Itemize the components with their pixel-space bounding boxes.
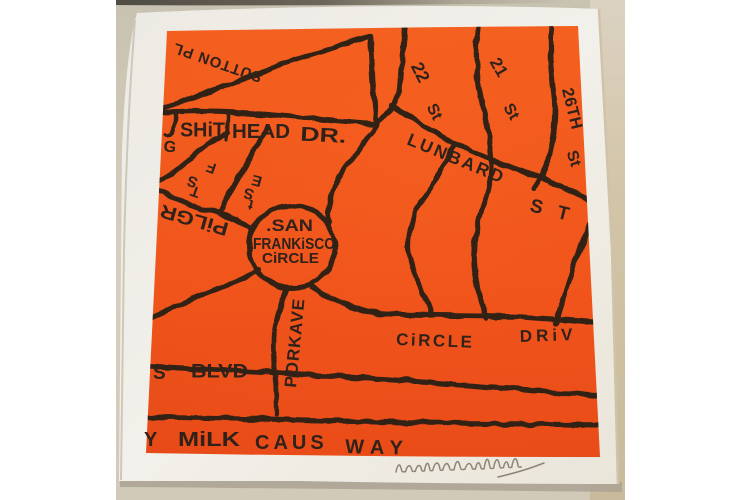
svg-text:Y: Y — [144, 429, 158, 451]
svg-text:G: G — [162, 138, 177, 157]
svg-text:DRiV: DRiV — [519, 325, 576, 346]
svg-text:MiLK: MiLK — [178, 429, 241, 451]
svg-text:WAY: WAY — [345, 436, 410, 460]
svg-text:CiRCLE: CiRCLE — [396, 330, 475, 352]
svg-text:.SAN: .SAN — [266, 216, 313, 235]
svg-text:CAUS: CAUS — [255, 432, 328, 454]
svg-text:HEAD: HEAD — [232, 121, 290, 143]
svg-text:DR.: DR. — [300, 124, 347, 148]
svg-text:SHiT: SHiT — [180, 120, 225, 142]
svg-text:BLVD: BLVD — [191, 362, 248, 383]
svg-text:S: S — [153, 363, 166, 384]
svg-text:CiRCLE: CiRCLE — [262, 250, 319, 267]
